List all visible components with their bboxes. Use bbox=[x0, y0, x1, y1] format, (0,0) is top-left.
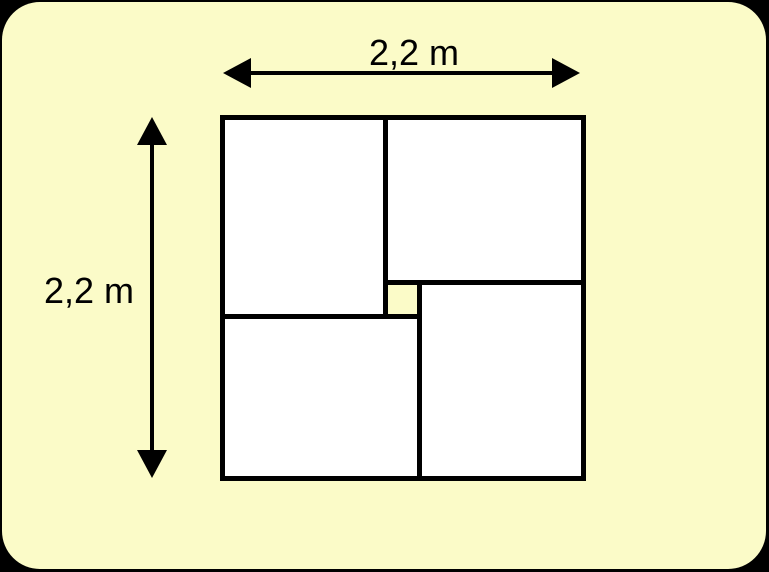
central-small-square bbox=[386, 282, 420, 317]
width-arrow-left-head-icon bbox=[223, 58, 251, 88]
width-arrow-right-head-icon bbox=[552, 58, 580, 88]
width-dimension-label: 2,2 m bbox=[369, 32, 459, 73]
height-dimension-label: 2,2 m bbox=[44, 270, 134, 311]
height-dimension-arrow bbox=[137, 117, 167, 478]
height-arrow-bottom-head-icon bbox=[137, 450, 167, 478]
height-arrow-top-head-icon bbox=[137, 117, 167, 145]
geometry-figure: 2,2 m 2,2 m bbox=[0, 0, 769, 572]
